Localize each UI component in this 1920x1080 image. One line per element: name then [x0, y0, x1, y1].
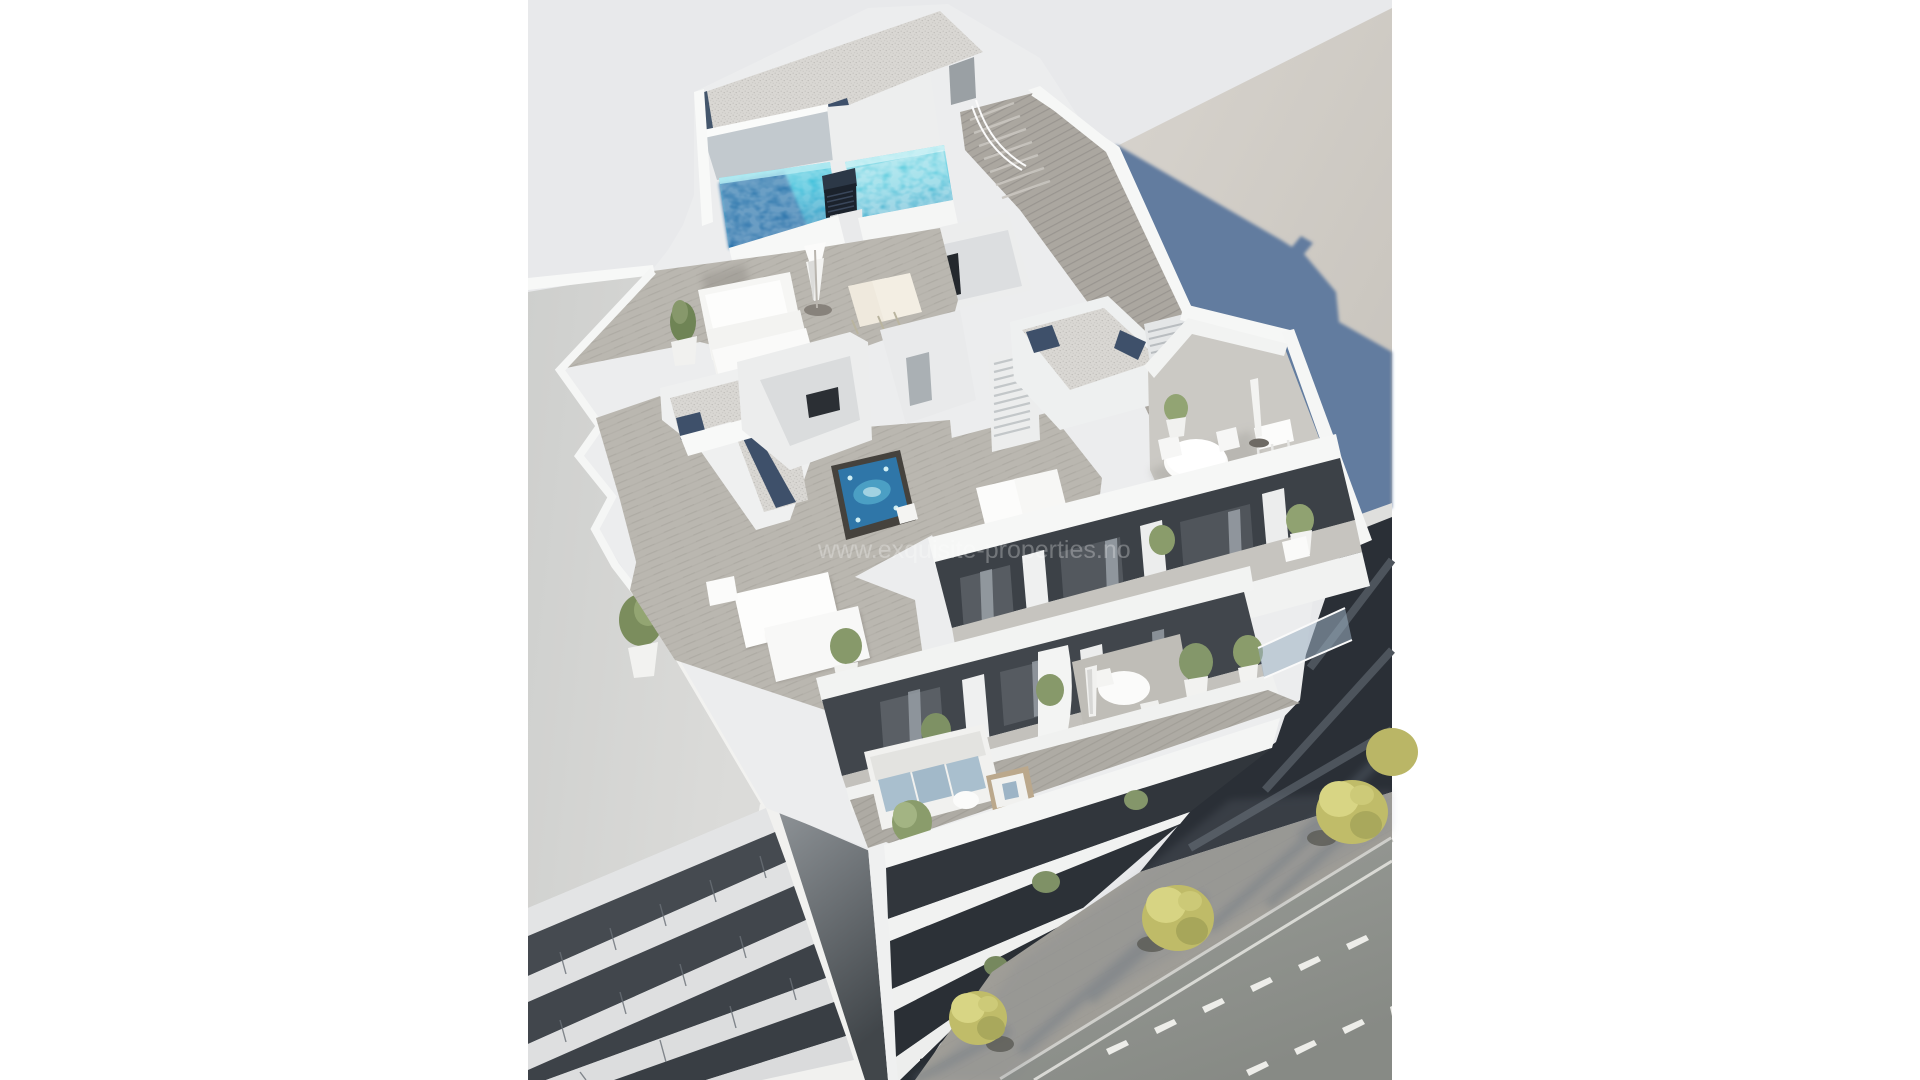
- svg-text:www.exquisite-properties.no: www.exquisite-properties.no: [817, 536, 1131, 564]
